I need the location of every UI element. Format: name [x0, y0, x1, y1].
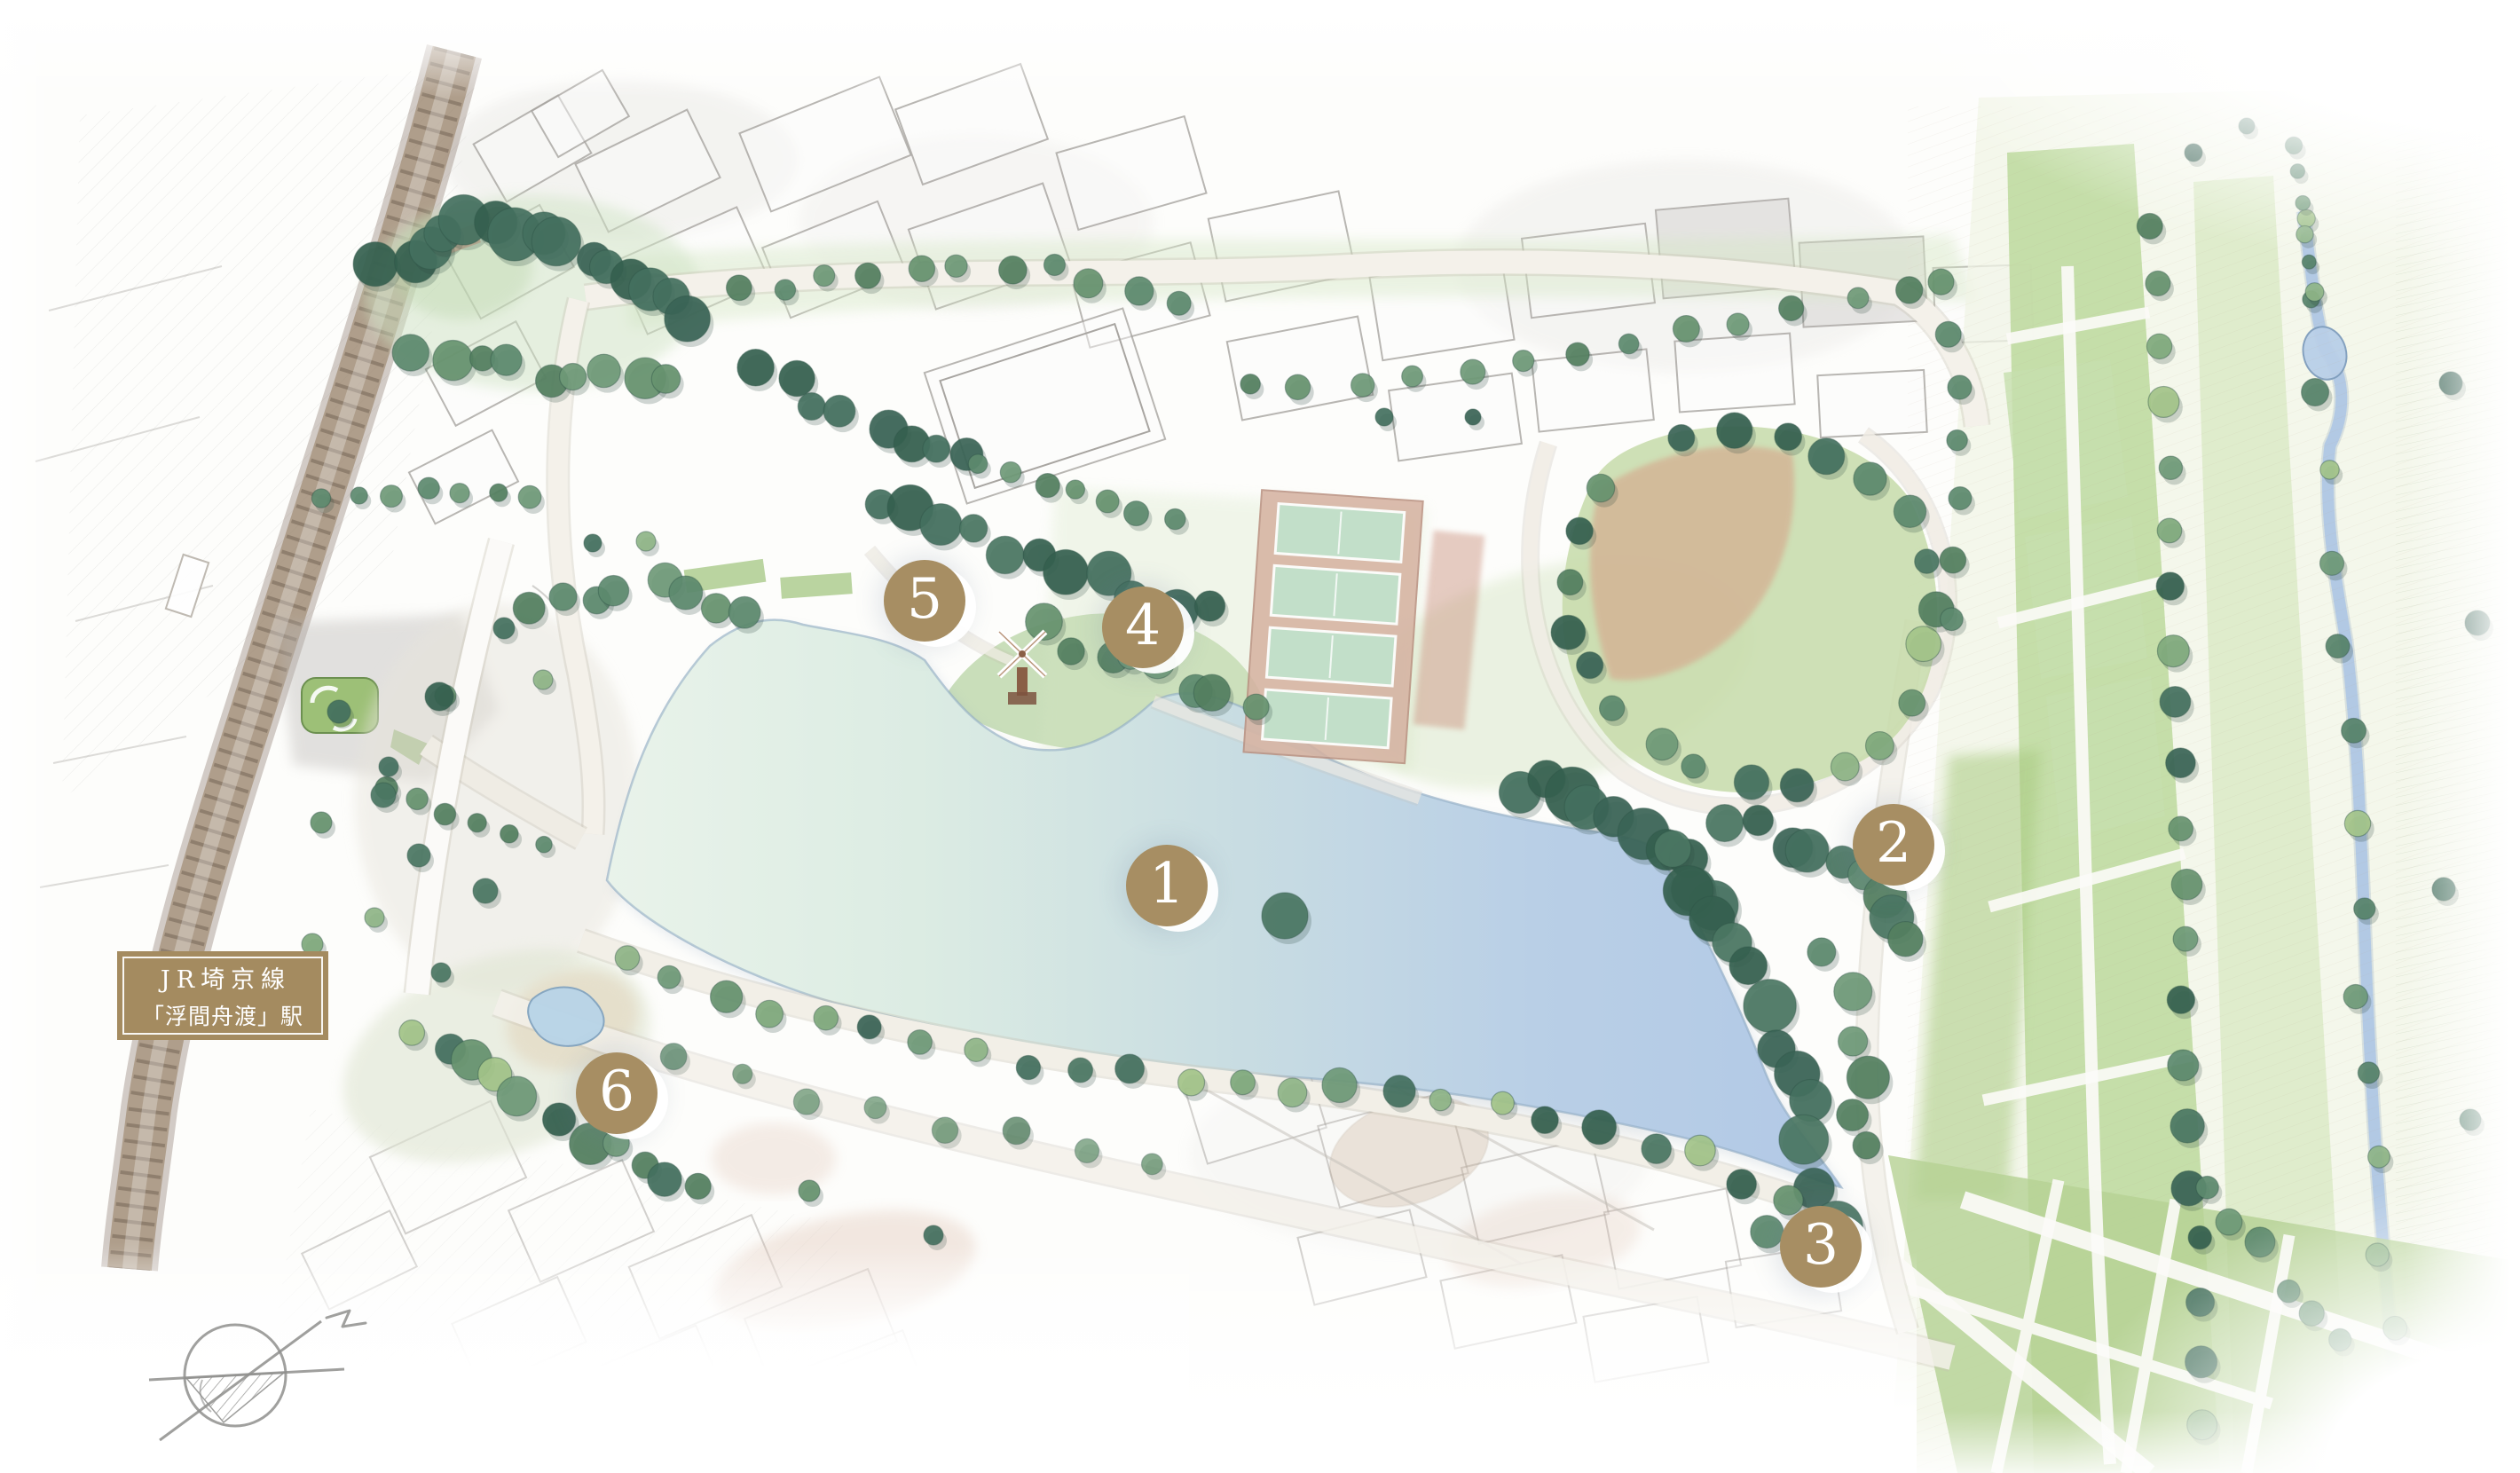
marker-number: 3: [1803, 1204, 1839, 1286]
marker-number: 6: [599, 1051, 634, 1132]
map-marker-3: 3: [1780, 1206, 1862, 1288]
marker-number: 5: [907, 558, 942, 640]
park-map-illustration: [0, 0, 2520, 1473]
marker-number: 4: [1125, 585, 1161, 666]
marker-number: 2: [1876, 802, 1911, 884]
tennis-courts: [1243, 490, 1422, 763]
station-label-line1: JR埼京線: [161, 960, 291, 995]
marker-number: 1: [1149, 843, 1185, 925]
map-marker-1: 1: [1126, 845, 1208, 926]
station-label: JR埼京線 「浮間舟渡」駅: [117, 951, 328, 1040]
map-marker-5: 5: [884, 560, 965, 642]
map-marker-4: 4: [1102, 587, 1184, 668]
compass-icon: [133, 1291, 399, 1460]
map-marker-2: 2: [1853, 804, 1934, 886]
map-marker-6: 6: [576, 1052, 658, 1134]
park-map-stage: 1 2 3 4 5 6 JR埼京線 「浮間舟渡」駅: [0, 0, 2520, 1473]
station-label-line2: 「浮間舟渡」駅: [142, 999, 303, 1031]
riverbank: [1888, 84, 2520, 1473]
